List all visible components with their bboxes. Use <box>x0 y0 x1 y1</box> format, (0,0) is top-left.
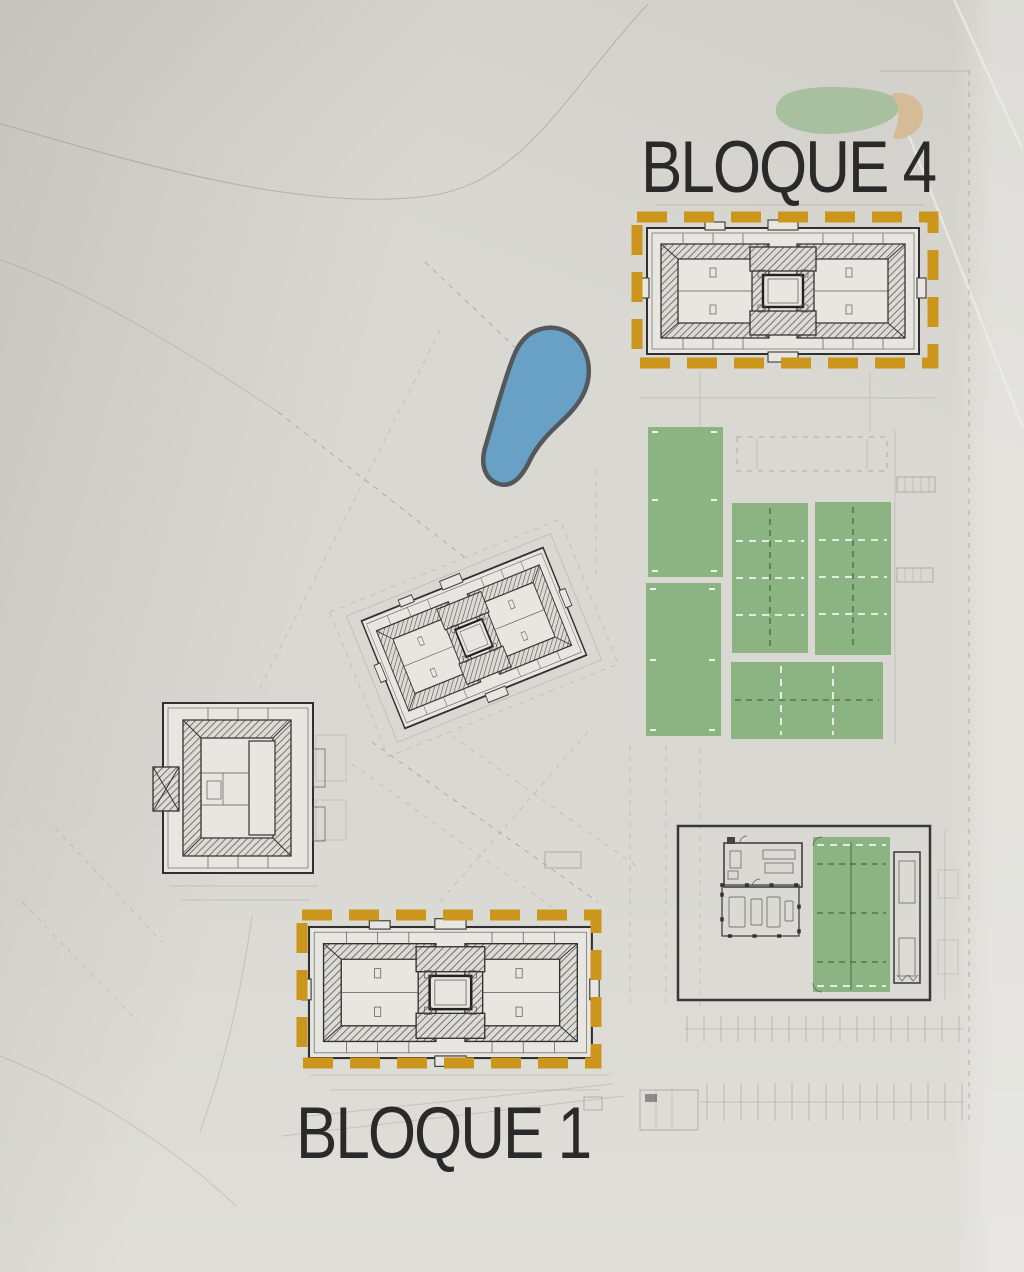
pond-shape <box>483 328 589 485</box>
pond <box>483 328 589 485</box>
building-bloque-4 <box>640 220 926 362</box>
bloque-1-label: BLOQUE 1 <box>296 1092 590 1176</box>
site-plan-page: BLOQUE 4 BLOQUE 1 <box>0 0 1024 1272</box>
building-middle <box>354 539 594 737</box>
bloque-4-label: BLOQUE 4 <box>641 126 935 210</box>
parking-rows <box>684 1016 964 1121</box>
building-bloque-1 <box>302 919 599 1067</box>
building-small <box>153 703 325 873</box>
court-left-top <box>648 427 723 577</box>
sports-courts <box>646 427 891 739</box>
sports-clubhouse-block <box>678 826 930 1000</box>
